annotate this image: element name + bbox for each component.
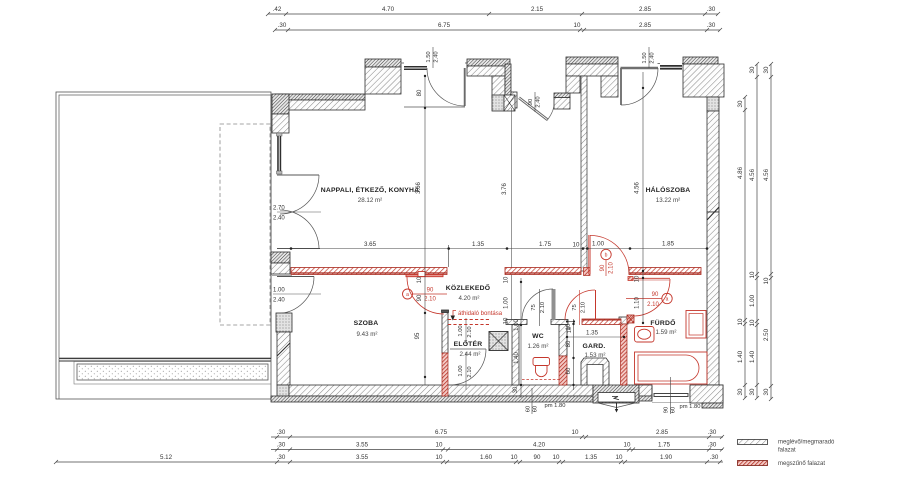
svg-text:1.50: 1.50: [426, 51, 432, 62]
svg-text:NAPPALI, ÉTKEZŐ, KONYHA: NAPPALI, ÉTKEZŐ, KONYHA: [321, 185, 420, 194]
svg-text:áthidaló bontása: áthidaló bontása: [458, 311, 503, 317]
svg-text:megszűnő falazat: megszűnő falazat: [778, 461, 825, 467]
svg-text:pm 1.80: pm 1.80: [545, 403, 566, 409]
svg-text:90: 90: [664, 407, 670, 413]
svg-text:2.10: 2.10: [581, 302, 587, 313]
svg-text:WC: WC: [532, 333, 544, 340]
svg-text:.30: .30: [707, 6, 716, 13]
svg-text:10: 10: [504, 276, 510, 283]
svg-text:60: 60: [526, 406, 532, 412]
svg-text:1.40: 1.40: [737, 350, 744, 363]
svg-text:30: 30: [763, 388, 770, 395]
svg-text:2.10: 2.10: [467, 366, 473, 377]
svg-text:b: b: [605, 253, 608, 259]
svg-text:.30: .30: [277, 454, 286, 461]
svg-text:1.40: 1.40: [514, 352, 520, 364]
svg-text:4.20 m²: 4.20 m²: [459, 295, 480, 302]
svg-text:1.75: 1.75: [658, 442, 671, 449]
svg-text:falazat: falazat: [778, 448, 796, 454]
svg-text:10: 10: [574, 22, 581, 29]
svg-text:9.43 m²: 9.43 m²: [357, 331, 378, 338]
svg-text:1.60: 1.60: [480, 454, 493, 461]
svg-text:5.12: 5.12: [160, 454, 173, 461]
svg-text:1.40: 1.40: [749, 350, 756, 363]
svg-text:2.70: 2.70: [273, 206, 285, 212]
svg-text:90: 90: [528, 99, 534, 105]
svg-text:.30: .30: [710, 454, 719, 461]
svg-text:3.55: 3.55: [356, 442, 369, 449]
svg-text:3.55: 3.55: [356, 454, 369, 461]
svg-text:1.35: 1.35: [585, 454, 598, 461]
svg-text:4.56: 4.56: [749, 168, 756, 181]
svg-text:2.85: 2.85: [639, 6, 652, 13]
svg-text:80: 80: [566, 340, 572, 347]
svg-text:10: 10: [749, 271, 756, 278]
svg-text:.30: .30: [708, 442, 717, 449]
svg-text:75: 75: [572, 304, 578, 310]
svg-text:90: 90: [427, 288, 434, 294]
svg-text:1.00: 1.00: [458, 325, 464, 336]
svg-text:meglévő/megmaradó: meglévő/megmaradó: [778, 440, 835, 446]
svg-text:.30: .30: [278, 22, 287, 29]
svg-text:10: 10: [511, 454, 518, 461]
svg-text:10: 10: [572, 429, 579, 436]
svg-text:.30: .30: [277, 429, 286, 436]
svg-text:90: 90: [600, 264, 606, 271]
svg-text:90: 90: [652, 292, 659, 298]
svg-text:1.59 m²: 1.59 m²: [656, 329, 677, 336]
svg-text:1.00: 1.00: [514, 319, 520, 331]
svg-text:4.86: 4.86: [737, 166, 744, 179]
svg-text:1.35: 1.35: [472, 241, 485, 248]
svg-text:30: 30: [513, 386, 519, 393]
svg-text:90: 90: [534, 454, 541, 461]
svg-text:10: 10: [567, 327, 573, 333]
svg-text:10: 10: [417, 276, 423, 283]
svg-text:6.75: 6.75: [435, 429, 448, 436]
svg-text:.30: .30: [708, 429, 717, 436]
svg-text:2.40: 2.40: [536, 96, 542, 107]
svg-text:30: 30: [763, 66, 770, 73]
svg-text:6.75: 6.75: [438, 22, 451, 29]
svg-text:3.76: 3.76: [502, 183, 508, 195]
svg-text:10: 10: [624, 442, 631, 449]
svg-text:95: 95: [415, 332, 421, 339]
svg-text:1.00: 1.00: [504, 297, 510, 309]
svg-text:10: 10: [737, 318, 744, 325]
svg-text:2.44 m²: 2.44 m²: [460, 351, 481, 358]
svg-text:GARD.: GARD.: [583, 343, 606, 350]
svg-text:60: 60: [671, 407, 677, 413]
svg-text:2.40: 2.40: [273, 216, 285, 222]
svg-text:1.35: 1.35: [586, 330, 599, 337]
svg-text:4.20: 4.20: [533, 442, 546, 449]
svg-text:a: a: [406, 292, 409, 298]
svg-text:2.85: 2.85: [656, 429, 669, 436]
svg-text:10: 10: [436, 442, 443, 449]
svg-text:10: 10: [504, 317, 510, 324]
svg-text:1.90: 1.90: [660, 454, 673, 461]
svg-text:.30: .30: [277, 442, 286, 449]
svg-text:1.50: 1.50: [642, 52, 648, 63]
svg-text:1.00: 1.00: [749, 294, 756, 307]
svg-text:2.85: 2.85: [639, 22, 652, 29]
svg-text:30: 30: [737, 100, 744, 107]
svg-text:2.10: 2.10: [609, 262, 615, 274]
svg-text:4.56: 4.56: [763, 168, 770, 181]
svg-text:2.15: 2.15: [531, 6, 544, 13]
svg-text:10: 10: [635, 275, 641, 282]
svg-text:2.10: 2.10: [424, 297, 436, 303]
svg-text:FÜRDŐ: FÜRDŐ: [650, 318, 675, 327]
svg-text:1.00: 1.00: [458, 365, 464, 376]
svg-text:2.10: 2.10: [467, 326, 473, 337]
svg-text:2.10: 2.10: [540, 302, 546, 313]
svg-text:10: 10: [749, 319, 756, 326]
svg-text:28.12 m²: 28.12 m²: [358, 197, 382, 204]
svg-text:30: 30: [749, 66, 756, 73]
svg-text:2.40: 2.40: [650, 52, 656, 63]
svg-text:HÁLÓSZOBA: HÁLÓSZOBA: [646, 185, 691, 194]
svg-text:3.65: 3.65: [364, 241, 377, 248]
svg-text:1.10: 1.10: [635, 297, 641, 309]
svg-text:1.00: 1.00: [592, 241, 605, 248]
svg-text:1.26 m²: 1.26 m²: [528, 343, 549, 350]
svg-text:10: 10: [573, 242, 580, 249]
svg-text:75: 75: [531, 304, 537, 310]
svg-text:4.56: 4.56: [635, 182, 641, 194]
svg-text:pm 1.80: pm 1.80: [680, 404, 701, 410]
svg-text:1.00: 1.00: [273, 288, 285, 294]
svg-text:90: 90: [417, 294, 423, 301]
svg-text:ELŐTÉR: ELŐTÉR: [454, 339, 483, 348]
svg-text:13.22 m²: 13.22 m²: [656, 197, 680, 204]
svg-text:1.53 m²: 1.53 m²: [585, 352, 606, 359]
svg-text:2.40: 2.40: [273, 298, 285, 304]
svg-text:4.70: 4.70: [382, 6, 395, 13]
svg-text:10: 10: [436, 454, 443, 461]
svg-text:80: 80: [417, 89, 423, 96]
svg-text:1.75: 1.75: [539, 241, 552, 248]
svg-text:a: a: [666, 297, 669, 303]
svg-text:SZOBA: SZOBA: [354, 320, 379, 327]
svg-text:10: 10: [763, 277, 770, 284]
svg-text:2.10: 2.10: [647, 302, 659, 308]
svg-text:30: 30: [749, 388, 756, 395]
svg-text:.42: .42: [273, 6, 282, 13]
svg-text:60: 60: [533, 406, 539, 412]
svg-text:KÖZLEKEDŐ: KÖZLEKEDŐ: [446, 283, 490, 292]
svg-text:1.85: 1.85: [662, 241, 675, 248]
svg-text:.30: .30: [707, 22, 716, 29]
svg-text:10: 10: [616, 454, 623, 461]
svg-text:30: 30: [737, 388, 744, 395]
svg-text:10: 10: [553, 454, 560, 461]
svg-text:2.50: 2.50: [763, 328, 770, 341]
svg-text:60: 60: [566, 367, 572, 374]
svg-text:2.40: 2.40: [434, 51, 440, 62]
